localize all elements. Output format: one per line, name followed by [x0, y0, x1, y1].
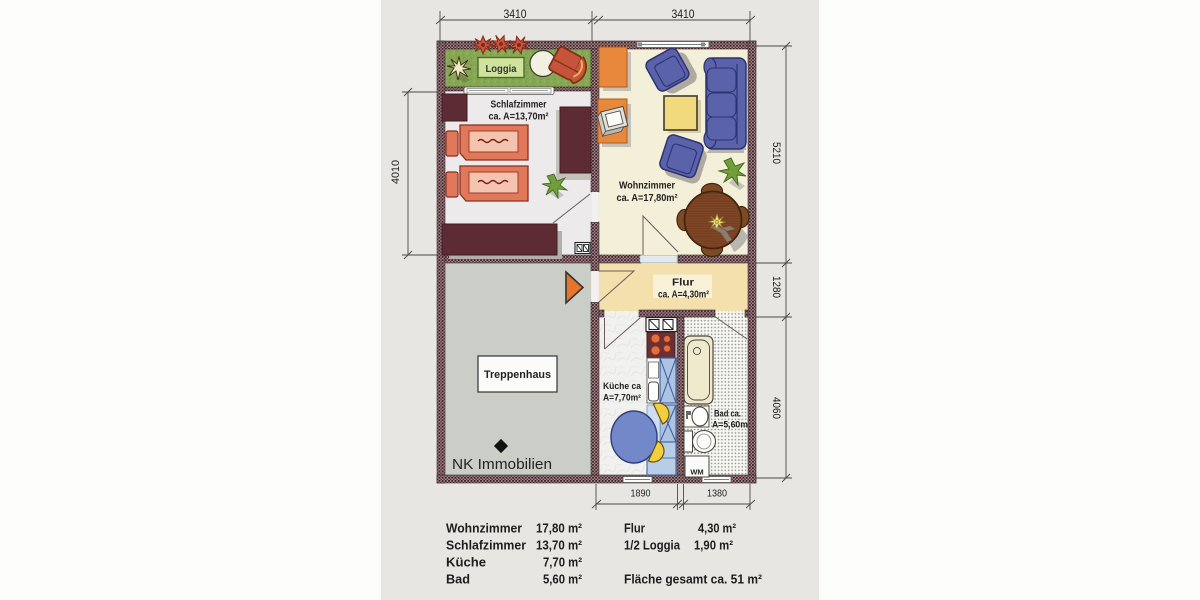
svg-text:Loggia: Loggia: [486, 64, 517, 75]
svg-text:4,30 m²: 4,30 m²: [698, 522, 736, 536]
svg-text:1/2 Loggia: 1/2 Loggia: [624, 539, 681, 553]
svg-text:ca. A=4,30m²: ca. A=4,30m²: [658, 290, 710, 301]
svg-text:Bad: Bad: [446, 573, 470, 587]
svg-text:1380: 1380: [707, 488, 727, 500]
svg-text:Schlafzimmer: Schlafzimmer: [446, 539, 526, 553]
svg-text:Flur: Flur: [672, 278, 694, 289]
svg-text:WM: WM: [690, 468, 703, 477]
svg-text:4010: 4010: [390, 160, 402, 184]
svg-text:NK Immobilien: NK Immobilien: [452, 456, 552, 473]
svg-text:Bad ca.: Bad ca.: [714, 409, 741, 419]
svg-text:A=5,60m: A=5,60m: [712, 420, 748, 430]
svg-text:Treppenhaus: Treppenhaus: [484, 369, 551, 381]
svg-text:Wohnzimmer: Wohnzimmer: [619, 181, 675, 192]
svg-text:Wohnzimmer: Wohnzimmer: [446, 522, 522, 536]
svg-text:Fläche gesamt ca. 51 m²: Fläche gesamt ca. 51 m²: [624, 573, 762, 587]
svg-text:3410: 3410: [672, 7, 695, 21]
svg-text:7,70 m²: 7,70 m²: [543, 556, 582, 570]
svg-text:Küche ca: Küche ca: [603, 381, 642, 391]
svg-text:1890: 1890: [631, 488, 651, 500]
svg-text:13,70 m²: 13,70 m²: [536, 539, 582, 553]
svg-text:Flur: Flur: [624, 522, 645, 536]
svg-text:4060: 4060: [770, 397, 782, 419]
svg-text:5,60 m²: 5,60 m²: [543, 573, 582, 587]
svg-text:ca. A=17,80m²: ca. A=17,80m²: [617, 193, 679, 204]
svg-text:5210: 5210: [770, 142, 782, 164]
svg-text:A=7,70m²: A=7,70m²: [603, 393, 641, 403]
svg-text:ca. A=13,70m²: ca. A=13,70m²: [489, 112, 550, 123]
svg-text:17,80 m²: 17,80 m²: [536, 522, 582, 536]
svg-text:1,90 m²: 1,90 m²: [694, 539, 733, 553]
svg-text:Schlafzimmer: Schlafzimmer: [491, 100, 547, 111]
svg-text:3410: 3410: [504, 7, 527, 21]
svg-text:Küche: Küche: [446, 556, 486, 570]
svg-text:1280: 1280: [770, 276, 782, 298]
